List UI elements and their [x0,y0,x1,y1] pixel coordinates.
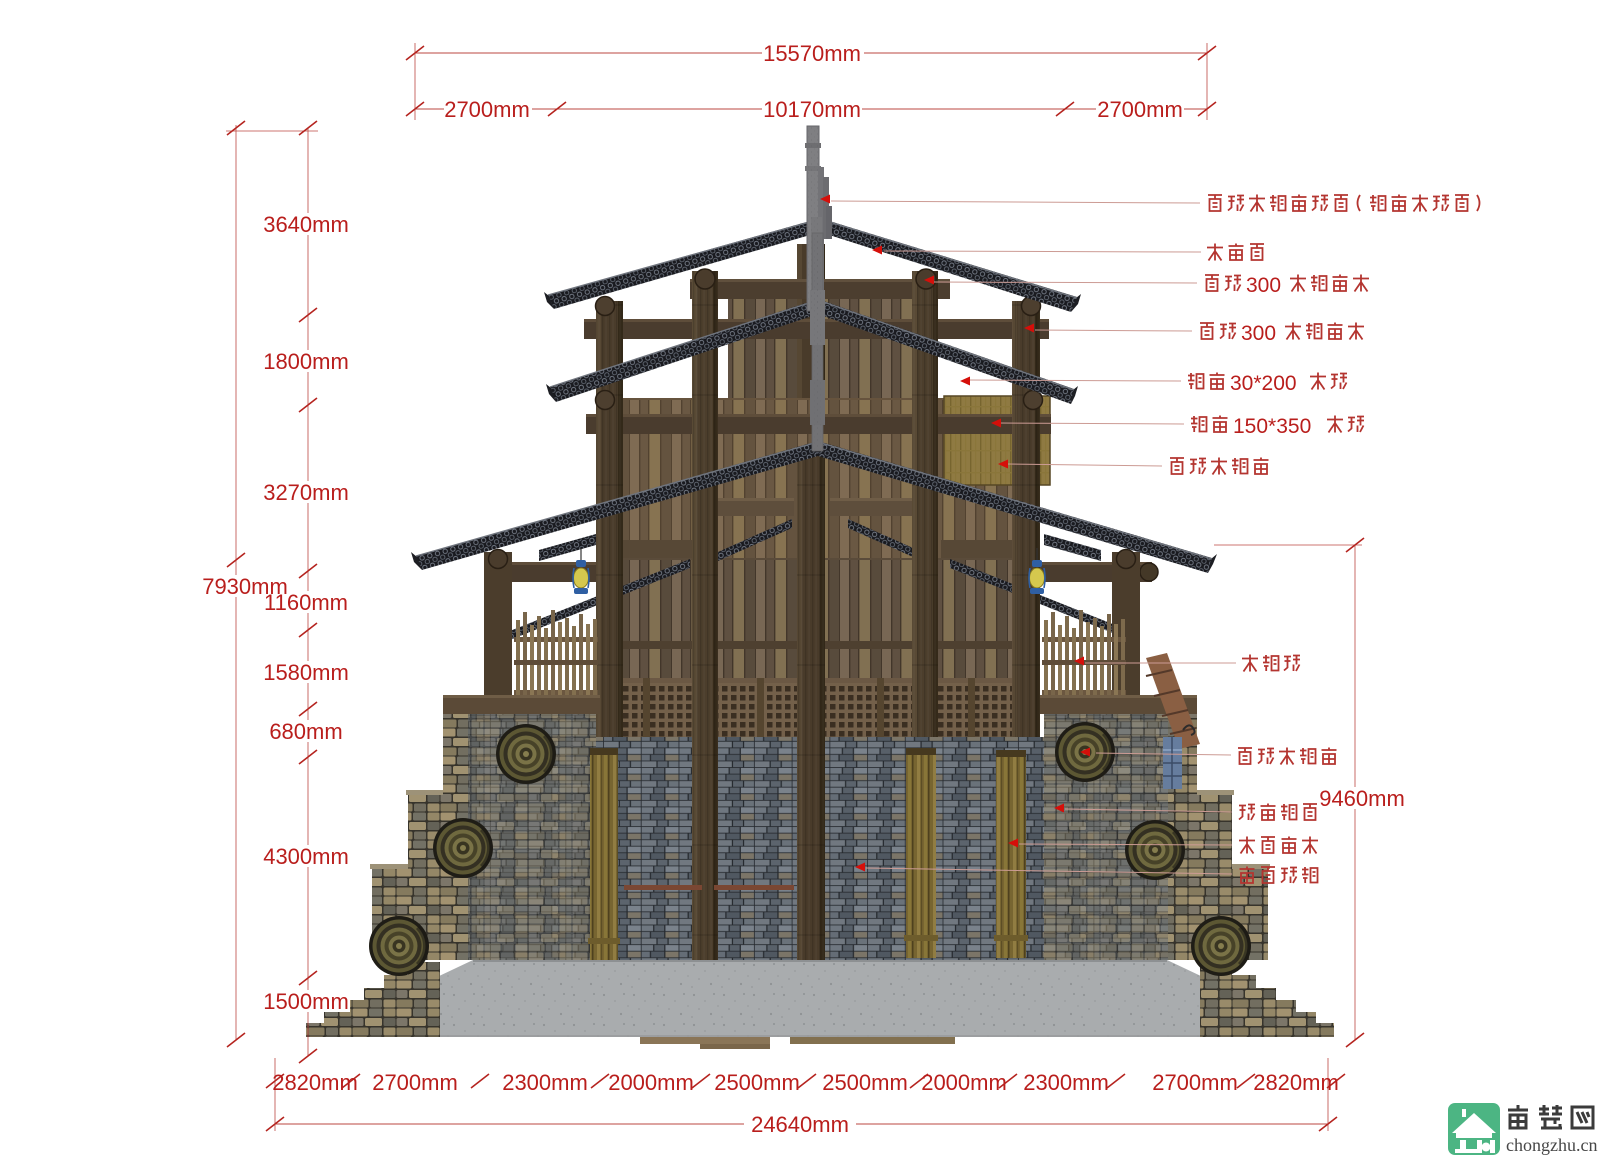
svg-text:2820mm: 2820mm [1253,1070,1339,1095]
svg-text:3270mm: 3270mm [263,480,349,505]
svg-text:2700mm: 2700mm [444,97,530,122]
svg-text:2700mm: 2700mm [372,1070,458,1095]
svg-text:1160mm: 1160mm [264,590,348,615]
svg-text:1580mm: 1580mm [263,660,349,685]
svg-text:1500mm: 1500mm [263,989,349,1014]
svg-text:2500mm: 2500mm [714,1070,800,1095]
svg-text:300: 300 [1241,322,1276,345]
svg-text:2700mm: 2700mm [1152,1070,1238,1095]
svg-text:1800mm: 1800mm [263,349,349,374]
svg-text:30*200: 30*200 [1230,372,1297,395]
svg-text:2300mm: 2300mm [502,1070,588,1095]
svg-text:15570mm: 15570mm [763,41,861,66]
svg-text:2000mm: 2000mm [921,1070,1007,1095]
svg-text:9460mm: 9460mm [1319,786,1405,811]
svg-text:300: 300 [1246,274,1281,297]
svg-text:2500mm: 2500mm [822,1070,908,1095]
svg-text:chongzhu.cn: chongzhu.cn [1506,1135,1597,1155]
svg-text:2000mm: 2000mm [608,1070,694,1095]
svg-text:24640mm: 24640mm [751,1112,849,1137]
svg-text:3640mm: 3640mm [263,212,349,237]
svg-text:2700mm: 2700mm [1097,97,1183,122]
svg-text:4300mm: 4300mm [263,844,349,869]
svg-text:2820mm: 2820mm [272,1070,358,1095]
svg-text:10170mm: 10170mm [763,97,861,122]
svg-text:2300mm: 2300mm [1023,1070,1109,1095]
svg-text:680mm: 680mm [269,719,342,744]
svg-text:150*350: 150*350 [1233,415,1311,438]
